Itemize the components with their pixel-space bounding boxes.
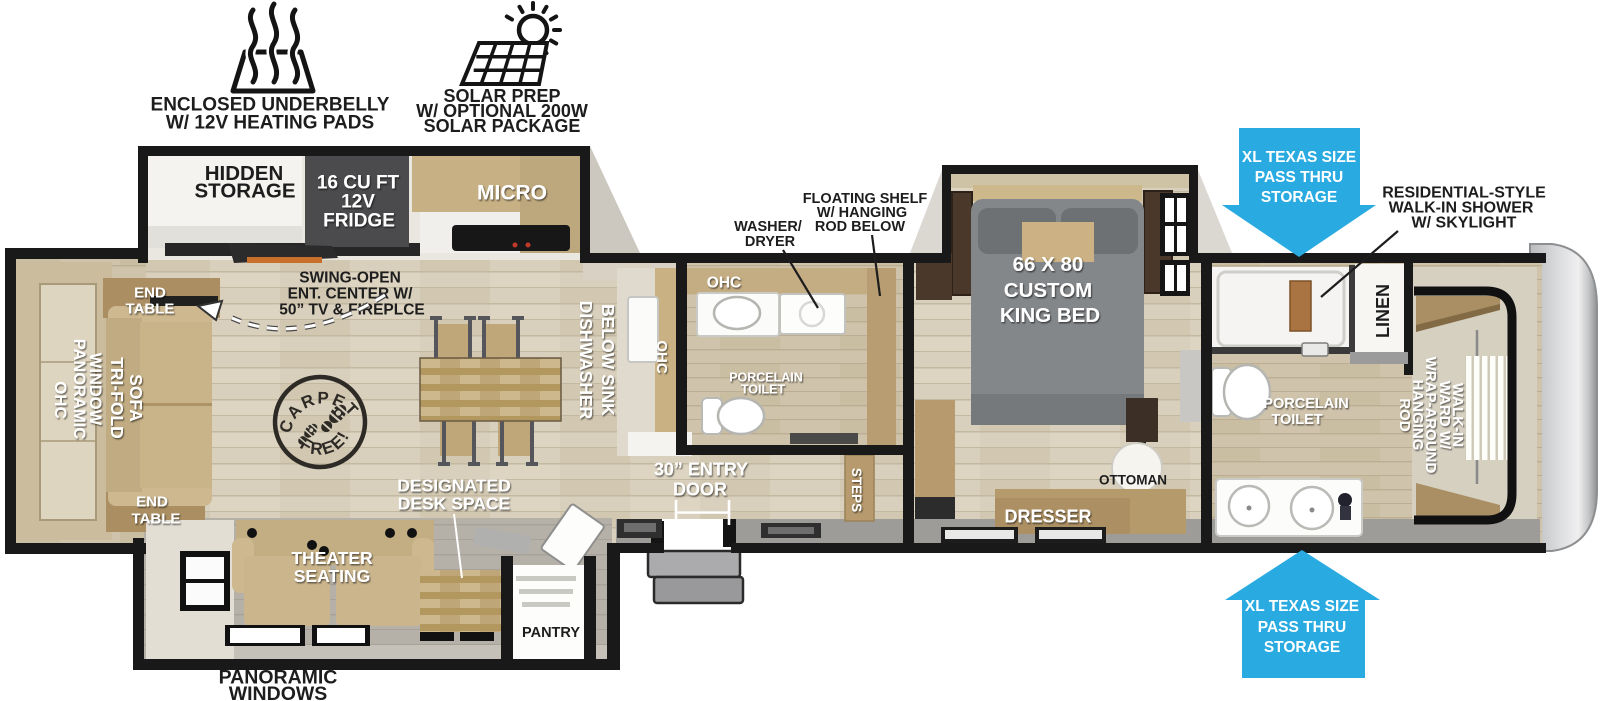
svg-text:WALK-IN: WALK-IN [1449,383,1466,447]
svg-text:SWING-OPEN: SWING-OPEN [299,270,401,287]
svg-text:BELOW SINK: BELOW SINK [598,304,618,416]
svg-text:PANORAMIC: PANORAMIC [70,339,88,440]
svg-text:50” TV & FIREPLCE: 50” TV & FIREPLCE [279,302,425,319]
svg-text:STORAGE: STORAGE [1264,639,1340,656]
svg-text:CUSTOM: CUSTOM [1004,279,1092,302]
svg-text:WASHER/: WASHER/ [734,219,802,235]
svg-text:XL TEXAS SIZE: XL TEXAS SIZE [1242,149,1356,166]
svg-text:SEATING: SEATING [294,566,371,586]
svg-text:SOFA: SOFA [126,374,146,422]
svg-text:DRYER: DRYER [745,234,796,250]
svg-text:XL TEXAS SIZE: XL TEXAS SIZE [1245,598,1359,615]
svg-text:KING BED: KING BED [1000,304,1100,327]
svg-text:DESK SPACE: DESK SPACE [398,494,510,514]
svg-text:FRIDGE: FRIDGE [323,211,395,232]
svg-text:OHC: OHC [51,381,70,419]
svg-text:SOLAR PACKAGE: SOLAR PACKAGE [424,116,581,136]
svg-text:PORCELAIN: PORCELAIN [1263,396,1348,412]
svg-text:ROD BELOW: ROD BELOW [815,219,906,235]
svg-text:TRI-FOLD: TRI-FOLD [107,357,127,439]
svg-text:ENT. CENTER W/: ENT. CENTER W/ [288,286,414,303]
svg-text:MICRO: MICRO [477,182,547,205]
svg-text:WINDOW: WINDOW [86,353,104,426]
svg-text:TOILET: TOILET [741,383,786,397]
svg-text:PASS THRU: PASS THRU [1258,619,1346,636]
svg-text:LINEN: LINEN [1373,284,1393,338]
svg-text:16 CU FT: 16 CU FT [317,173,400,194]
svg-text:DOOR: DOOR [673,480,727,500]
svg-text:OHC: OHC [653,340,670,374]
svg-text:END: END [134,285,166,302]
svg-text:OHC: OHC [707,275,741,292]
svg-text:STORAGE: STORAGE [1261,189,1337,206]
svg-text:W/ SKYLIGHT: W/ SKYLIGHT [1412,215,1517,232]
svg-text:WINDOWS: WINDOWS [229,683,328,701]
svg-text:PANTRY: PANTRY [522,625,580,641]
svg-text:THEATER: THEATER [291,548,373,568]
svg-text:W/ 12V HEATING PADS: W/ 12V HEATING PADS [166,113,374,134]
svg-text:DESIGNATED: DESIGNATED [397,476,510,496]
svg-text:TABLE: TABLE [132,511,181,528]
svg-text:PASS THRU: PASS THRU [1255,169,1343,186]
svg-text:DISHWASHER: DISHWASHER [576,301,596,420]
svg-text:TABLE: TABLE [126,301,175,318]
svg-text:TOILET: TOILET [1271,412,1322,428]
svg-text:12V: 12V [341,192,375,213]
svg-text:STEPS: STEPS [849,468,864,512]
svg-text:STORAGE: STORAGE [195,180,296,203]
svg-text:DRESSER: DRESSER [1004,507,1091,527]
svg-text:OTTOMAN: OTTOMAN [1099,473,1167,488]
svg-text:66 X 80: 66 X 80 [1013,253,1084,276]
svg-text:END: END [136,494,168,511]
svg-text:30” ENTRY: 30” ENTRY [654,460,748,480]
